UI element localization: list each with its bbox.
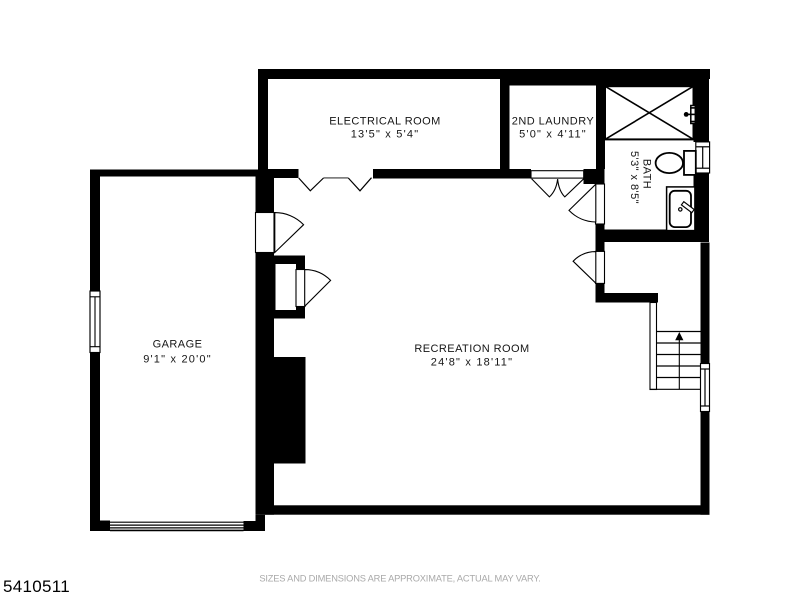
svg-text:RECREATION ROOM: RECREATION ROOM [414, 343, 529, 355]
svg-text:BATH: BATH [641, 159, 653, 189]
svg-text:9'1" x 20'0": 9'1" x 20'0" [143, 354, 212, 366]
svg-text:5'3" x 8'5": 5'3" x 8'5" [628, 151, 640, 204]
svg-text:24'8" x 18'11": 24'8" x 18'11" [431, 357, 513, 369]
svg-text:5410511: 5410511 [3, 577, 70, 596]
svg-text:SIZES AND DIMENSIONS ARE APPRO: SIZES AND DIMENSIONS ARE APPROXIMATE, AC… [259, 574, 540, 584]
svg-text:13'5" x 5'4": 13'5" x 5'4" [351, 129, 420, 141]
svg-text:5'0" x 4'11": 5'0" x 4'11" [519, 129, 587, 141]
svg-text:2ND LAUNDRY: 2ND LAUNDRY [512, 116, 595, 128]
svg-text:GARAGE: GARAGE [153, 339, 203, 351]
svg-text:ELECTRICAL ROOM: ELECTRICAL ROOM [329, 116, 440, 128]
